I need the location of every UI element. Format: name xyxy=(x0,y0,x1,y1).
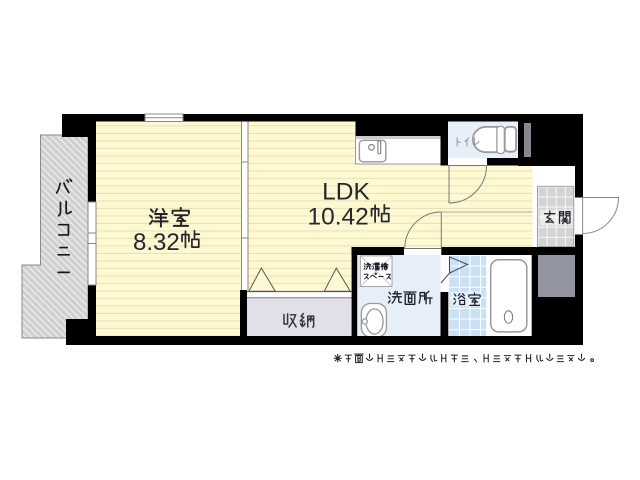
svg-text:10.42: 10.42 xyxy=(308,204,369,231)
svg-text:8.32: 8.32 xyxy=(133,229,180,256)
svg-text:LDK: LDK xyxy=(322,179,370,206)
